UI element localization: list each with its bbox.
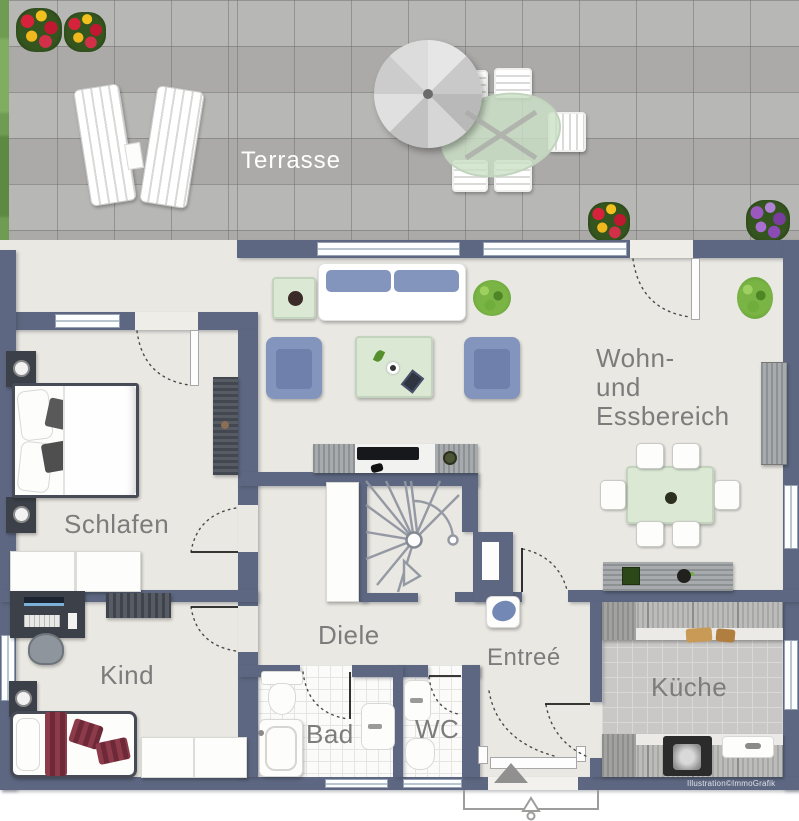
faucet: [745, 743, 761, 749]
coffee-table: [355, 336, 433, 398]
wall-stair-right: [462, 472, 478, 532]
bathtub: [259, 719, 303, 777]
room-label-kueche: Küche: [651, 672, 727, 703]
pc-tower: [68, 613, 77, 629]
accent-pillow-red: [95, 737, 131, 765]
wall-outer-bottom: [0, 777, 799, 790]
oven-door: [673, 744, 701, 770]
room-label-wohn-essbereich: Wohn- und Essbereich: [596, 344, 730, 431]
bed-runner: [45, 712, 67, 776]
tall-cabinet: [761, 362, 787, 465]
dining-chair: [714, 480, 740, 510]
wall-stair-left: [359, 482, 367, 602]
terrace-door-opening-bedroom: [135, 312, 198, 330]
toilet: [261, 671, 303, 715]
entrance-marker-triangle: [494, 763, 528, 783]
side-table: [272, 277, 316, 319]
dining-table: [626, 466, 714, 524]
shelf: [106, 593, 171, 618]
floor-plan: Terrasse Wohn- und Essbereich Schlafen K…: [0, 0, 799, 821]
sofa-cushion: [326, 270, 391, 292]
dresser: [10, 551, 141, 592]
toilet-bowl: [268, 683, 296, 715]
cup: [387, 362, 399, 374]
pillow: [16, 718, 40, 771]
sofa: [318, 263, 466, 321]
dining-chair: [636, 443, 664, 469]
parasol: [374, 40, 482, 148]
wall-kitchen-left-a: [590, 602, 602, 702]
entry-closet: [473, 532, 513, 602]
wall-top-bedroom: [0, 312, 258, 330]
entrance-door-post: [478, 746, 488, 764]
washbasin: [361, 703, 395, 750]
flower-bed: [588, 202, 630, 242]
plant-bush: [473, 280, 511, 316]
dining-chair: [672, 521, 700, 547]
door-opening-bedroom: [238, 505, 258, 552]
dining-chair: [600, 480, 626, 510]
double-bed: [12, 383, 139, 498]
basin-faucet: [410, 698, 423, 703]
tv-sideboard: [313, 444, 478, 473]
hall-closet-white: [326, 482, 359, 602]
armchair: [266, 337, 322, 399]
porch-arrow: [523, 798, 539, 811]
flower-bed-purple: [746, 200, 790, 242]
room-label-wc: WC: [415, 714, 459, 745]
nightstand: [6, 497, 36, 533]
illustration-credit: Illustration©ImmoGrafik: [687, 779, 775, 788]
terrace-door-leaf-bedroom: [190, 330, 199, 386]
tall-unit: [602, 734, 636, 777]
dining-chair: [636, 521, 664, 547]
wall-entry-top-b: [568, 590, 799, 602]
flower-bed: [16, 8, 62, 52]
monitor: [24, 597, 64, 606]
window-bedroom: [55, 314, 120, 328]
sink: [722, 736, 774, 758]
wardrobe-knob: [221, 421, 229, 429]
cutting-board: [686, 627, 713, 643]
kitchen-counter-bottom: [602, 734, 783, 777]
potted-plant-small: [288, 291, 303, 306]
decor-bowl: [677, 569, 691, 583]
room-label-bad: Bad: [306, 719, 354, 750]
window-living-1: [317, 242, 460, 256]
office-chair: [28, 633, 64, 665]
dresser: [141, 737, 247, 778]
wall-stair-bottom: [359, 593, 418, 602]
stool-cushion: [489, 597, 518, 624]
wardrobe: [213, 377, 238, 475]
stove: [663, 736, 712, 776]
cutting-board: [715, 628, 735, 643]
dining-sideboard: [603, 562, 733, 591]
window-wc: [403, 779, 462, 788]
window-kitchen-right: [784, 640, 798, 710]
label-line: und: [596, 373, 730, 402]
tall-unit: [602, 602, 636, 640]
room-label-schlafen: Schlafen: [64, 509, 169, 540]
door-opening-child: [238, 606, 258, 652]
grass-strip: [0, 0, 9, 252]
armchair: [464, 337, 520, 399]
wall-mid-vertical: [238, 330, 258, 777]
flower-bed: [64, 12, 106, 52]
terrace-door-leaf-living: [691, 258, 700, 320]
entry-closet-door: [482, 542, 499, 580]
window-living-2: [483, 242, 627, 256]
keyboard: [24, 615, 60, 627]
wall-bath-top-b: [352, 665, 428, 677]
tub-faucet: [258, 730, 264, 736]
stool: [486, 596, 520, 628]
tablet: [401, 369, 425, 393]
room-label-entree: Entreé: [487, 644, 561, 672]
duvet: [63, 386, 136, 495]
table-bowl: [665, 492, 677, 504]
tv: [357, 447, 419, 460]
plant-bush: [737, 277, 773, 319]
entrance-door-post: [576, 746, 586, 762]
decor-bowl: [443, 451, 457, 465]
window-dining-right: [784, 485, 798, 549]
armchair-seat: [276, 349, 312, 389]
label-line: Essbereich: [596, 402, 730, 431]
label-line: Wohn-: [596, 344, 730, 373]
armchair-seat: [474, 349, 510, 389]
kitchen-counter-top: [602, 602, 783, 640]
tub-inner: [265, 726, 297, 771]
room-label-kind: Kind: [100, 660, 154, 691]
entrance-porch-outline: [464, 790, 598, 820]
decor-leaf: [373, 349, 385, 363]
wall-kitchen-left-b: [590, 758, 602, 777]
basin-faucet: [368, 724, 382, 729]
terrace-door-opening-living: [630, 240, 693, 258]
plant-box: [622, 567, 640, 585]
dining-chair: [672, 443, 700, 469]
nightstand: [6, 351, 36, 387]
sofa-cushion: [394, 270, 459, 292]
room-label-terrasse: Terrasse: [241, 147, 341, 175]
window-bath: [325, 779, 388, 788]
room-label-diele: Diele: [318, 620, 380, 651]
desk: [10, 591, 85, 638]
child-bed: [10, 711, 137, 778]
porch-knob: [528, 813, 535, 820]
